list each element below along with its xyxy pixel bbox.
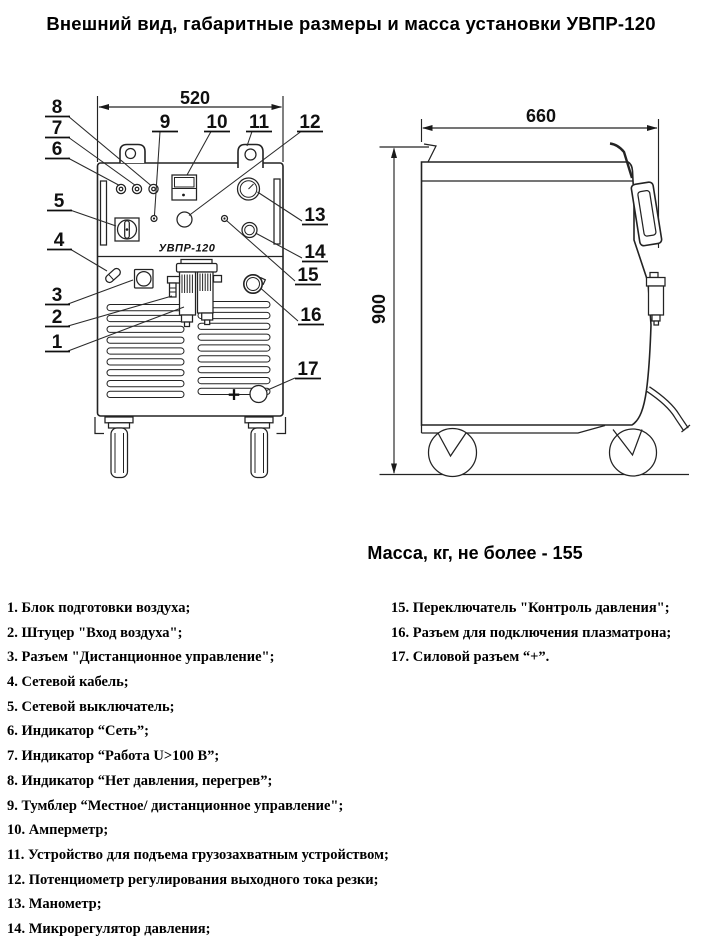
callout-13: 13	[304, 205, 325, 226]
manual-page: Внешний вид, габаритные размеры и масса …	[0, 0, 702, 937]
callout-17: 17	[297, 359, 318, 380]
lug-hole-left	[126, 149, 136, 159]
caster-front-left	[105, 417, 133, 478]
callout-15: 15	[297, 265, 319, 286]
base-bracket-right	[277, 417, 286, 434]
legend-item-7: 7. Индикатор “Работа U>100 В”;	[7, 744, 387, 769]
callout-2: 2	[52, 307, 63, 328]
lug-hole-right	[245, 149, 256, 160]
callout-12: 12	[299, 112, 320, 133]
mains-switch	[115, 218, 139, 241]
caster-front-right	[245, 417, 273, 478]
remote-control-connector	[135, 270, 154, 289]
manometer	[238, 178, 260, 200]
legend-item-11: 11. Устройство для подъема грузозахватны…	[7, 843, 387, 868]
dim-height-label: 900	[369, 294, 389, 324]
plus-symbol: +	[228, 384, 240, 407]
caster-side-front	[429, 429, 477, 477]
legend-item-1: 1. Блок подготовки воздуха;	[7, 596, 387, 621]
legend-item-6: 6. Индикатор “Сеть”;	[7, 719, 387, 744]
legend-column-right: 15. Переключатель "Контроль давления"; 1…	[391, 596, 696, 670]
ammeter	[172, 175, 197, 200]
drain-left	[182, 315, 193, 322]
legend-item-5: 5. Сетевой выключатель;	[7, 695, 387, 720]
callout-8: 8	[52, 97, 63, 118]
callout-5: 5	[54, 191, 65, 212]
base-bracket-left	[95, 417, 104, 434]
dim-depth-label: 660	[526, 106, 556, 126]
mass-note: Масса, кг, не более - 155	[330, 543, 620, 564]
front-view: 520	[45, 88, 328, 478]
legend-item-3: 3. Разъем "Дистанционное управление";	[7, 645, 387, 670]
legend-item-14: 14. Микрорегулятор давления;	[7, 917, 387, 937]
panel-trim-right	[274, 179, 280, 244]
callout-16: 16	[300, 305, 321, 326]
legend-item-4: 4. Сетевой кабель;	[7, 670, 387, 695]
caster-side-rear	[610, 429, 657, 476]
callout-10: 10	[206, 112, 227, 133]
callout-11: 11	[249, 112, 270, 133]
legend-item-16: 16. Разъем для подключения плазматрона;	[391, 621, 696, 646]
legend-item-15: 15. Переключатель "Контроль давления";	[391, 596, 696, 621]
model-label: УВПР-120	[159, 243, 216, 255]
callout-7: 7	[52, 118, 63, 139]
cabinet-side	[422, 144, 652, 434]
indicator-lights	[116, 184, 158, 193]
legend-item-17: 17. Силовой разъем “+”.	[391, 645, 696, 670]
callout-1: 1	[52, 332, 63, 353]
callout-3: 3	[52, 285, 63, 306]
legend-column-left: 1. Блок подготовки воздуха; 2. Штуцер "В…	[7, 596, 387, 937]
drain-right	[202, 313, 213, 320]
local-remote-toggle	[151, 216, 157, 222]
legend-item-8: 8. Индикатор “Нет давления, перегрев”;	[7, 769, 387, 794]
legend-item-2: 2. Штуцер "Вход воздуха";	[7, 621, 387, 646]
legend-item-9: 9. Тумблер “Местное/ дистанционное управ…	[7, 794, 387, 819]
legend-item-10: 10. Амперметр;	[7, 818, 387, 843]
current-potentiometer	[177, 212, 192, 227]
side-view: 660 900	[369, 106, 690, 477]
callout-9: 9	[160, 112, 171, 133]
legend-item-12: 12. Потенциометр регулирования выходного…	[7, 868, 387, 893]
callout-4: 4	[54, 230, 65, 251]
legend-item-13: 13. Манометр;	[7, 892, 387, 917]
rear-bracket	[631, 182, 662, 247]
callout-14: 14	[304, 242, 326, 263]
callout-6: 6	[52, 139, 63, 160]
panel-trim-left	[101, 181, 107, 245]
dimension-figure: 520	[0, 0, 702, 530]
pressure-micro-regulator	[242, 223, 257, 238]
dim-width-label: 520	[180, 88, 210, 108]
mains-cable	[648, 389, 690, 432]
